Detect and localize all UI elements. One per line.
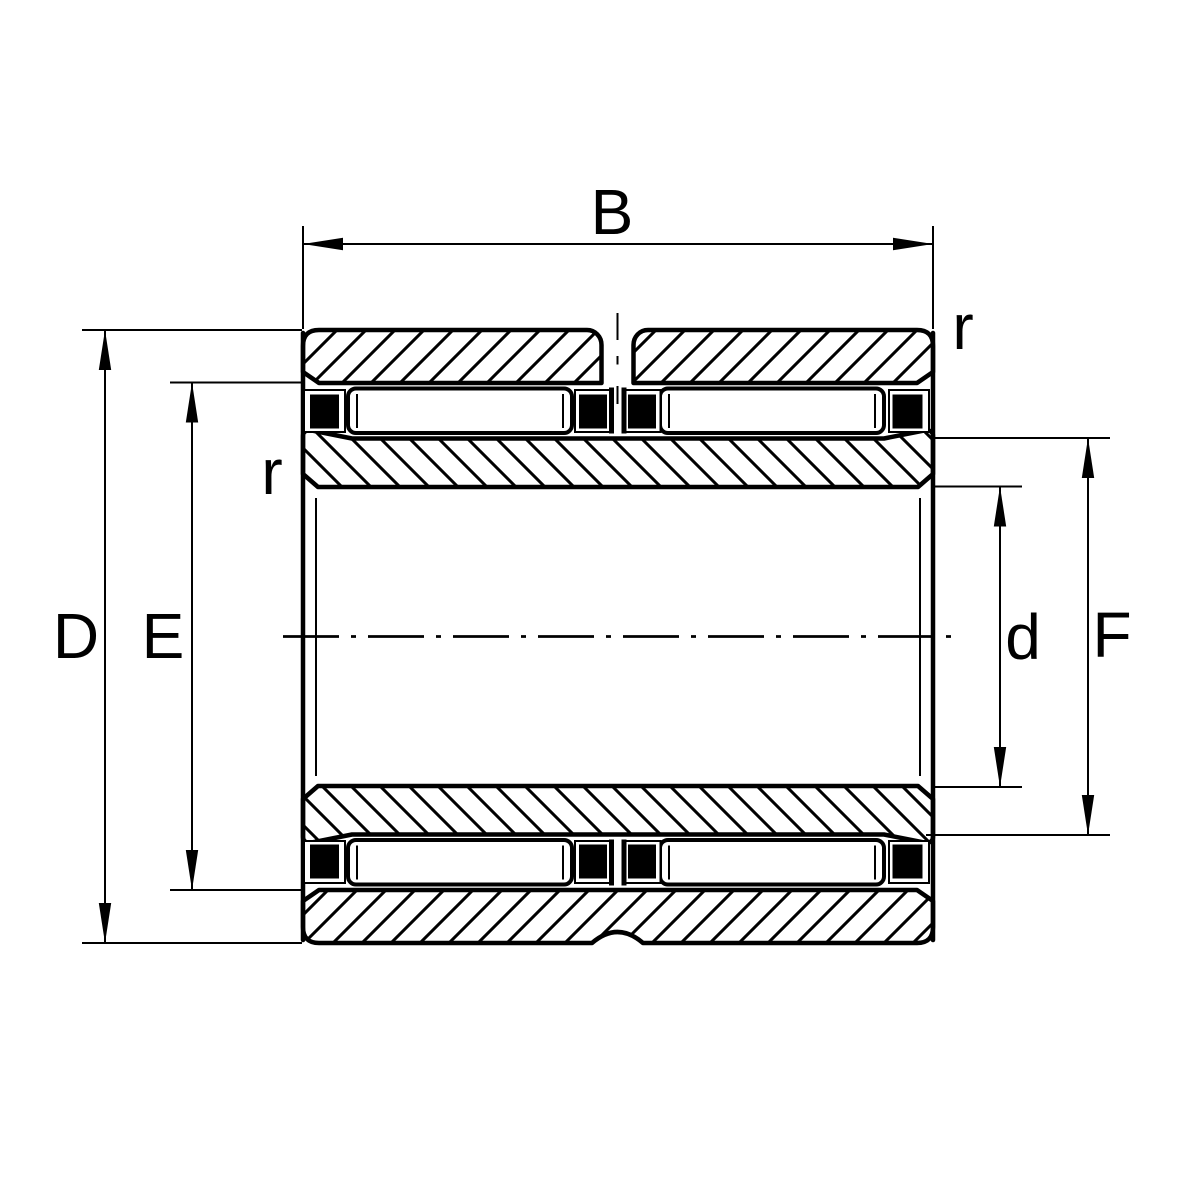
inner-ring-top-section <box>303 430 933 487</box>
bearing-cross-section-drawing: B D E d F r r <box>0 0 1200 1200</box>
dim-label-outer-raceway-E: E <box>142 600 185 672</box>
dim-label-inner-raceway-F: F <box>1092 599 1131 671</box>
cage-block <box>310 845 339 879</box>
dim-label-bore-d: d <box>1005 601 1041 673</box>
cage-block <box>628 395 656 429</box>
dim-label-chamfer-r-left: r <box>261 436 282 508</box>
dim-label-outer-diameter-D: D <box>53 600 99 672</box>
outer-ring-top-right-section <box>634 330 934 383</box>
roller-top-right <box>660 389 884 434</box>
roller-bottom-left <box>348 840 572 885</box>
bearing-drawing-page: B D E d F r r <box>0 0 1200 1200</box>
cage-block <box>893 845 923 879</box>
roller-bottom-right <box>660 840 884 885</box>
cage-block <box>579 845 607 879</box>
cage-block <box>628 845 656 879</box>
roller-top-left <box>348 389 572 434</box>
dim-label-chamfer-r-right: r <box>952 291 973 363</box>
cage-block <box>579 395 607 429</box>
outer-ring-top-left-section <box>303 330 602 383</box>
cage-block <box>893 395 923 429</box>
inner-ring-bottom-section <box>303 786 933 843</box>
dim-label-width-B: B <box>591 176 634 248</box>
cage-block <box>310 395 339 429</box>
